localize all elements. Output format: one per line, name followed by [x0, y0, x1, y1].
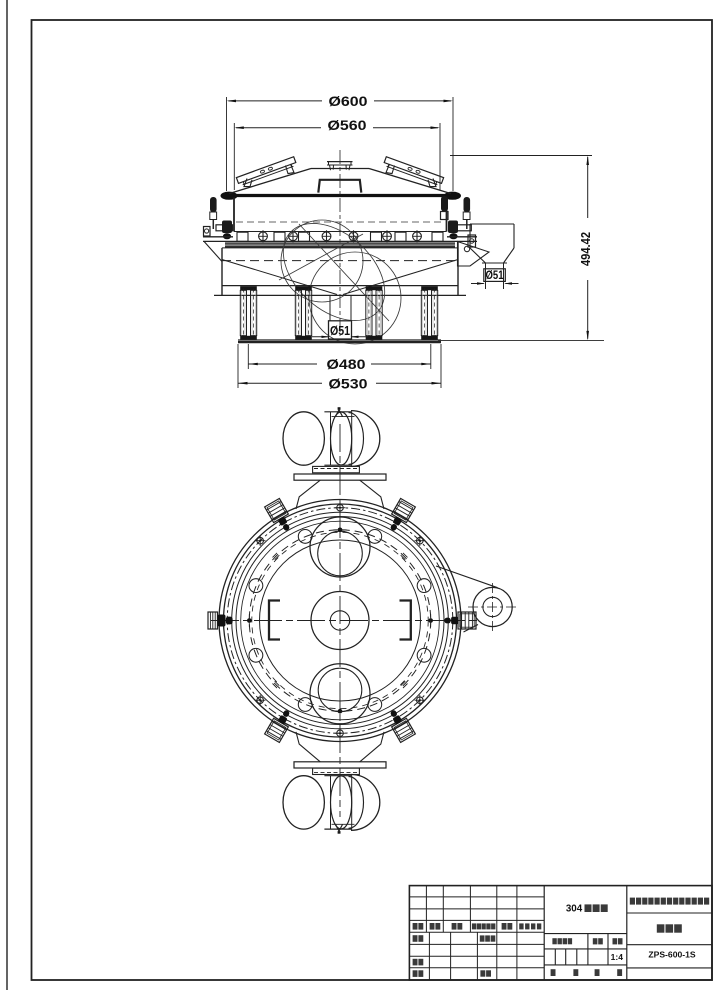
svg-text:Ø480: Ø480 [327, 357, 366, 372]
svg-text:Ø560: Ø560 [328, 118, 367, 133]
svg-text:Ø600: Ø600 [329, 94, 368, 109]
svg-text:Ø51: Ø51 [486, 268, 504, 282]
svg-text:Ø51: Ø51 [330, 323, 350, 338]
svg-text:494.42: 494.42 [578, 232, 593, 266]
svg-text:1:4: 1:4 [611, 952, 624, 962]
svg-text:Ø530: Ø530 [329, 376, 368, 391]
svg-text:ZPS-600-1S: ZPS-600-1S [648, 950, 696, 960]
svg-text:304: 304 [566, 904, 583, 915]
